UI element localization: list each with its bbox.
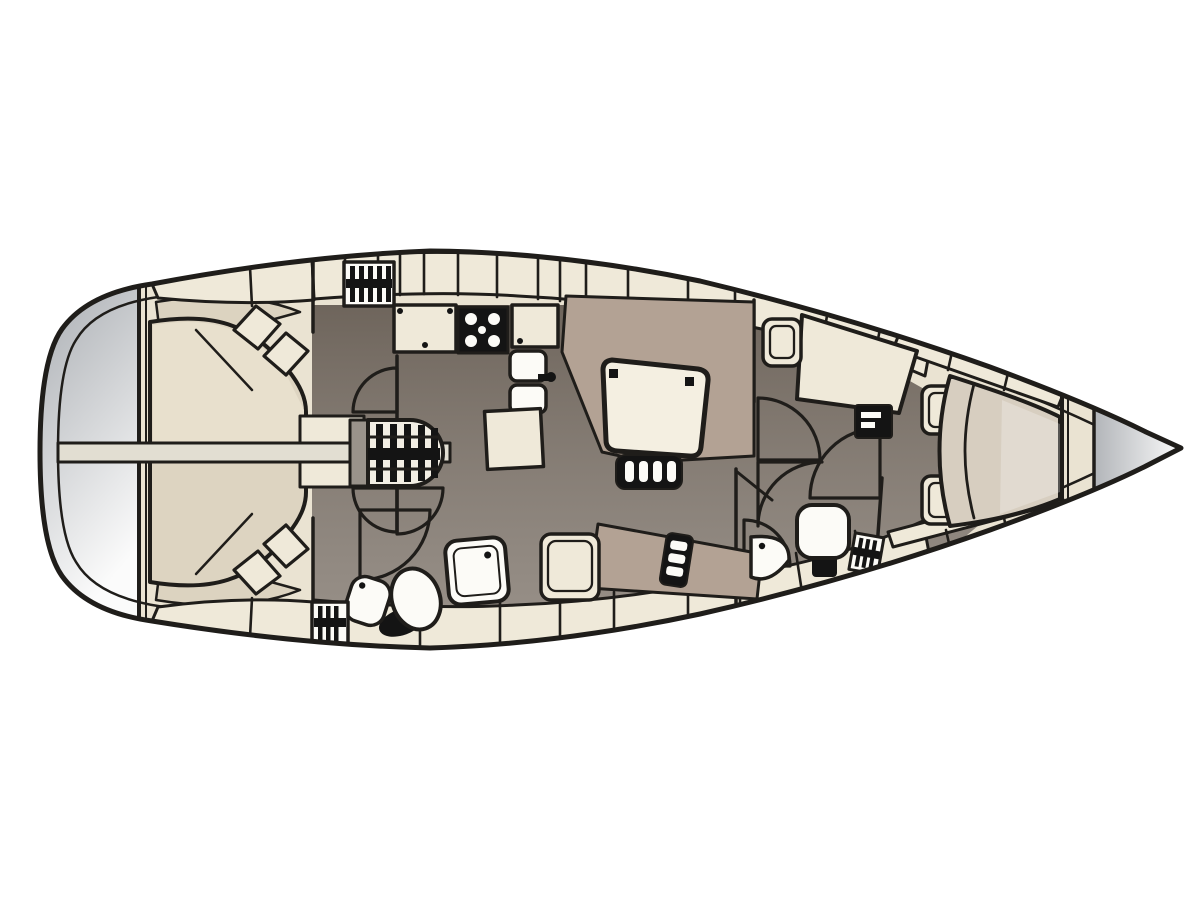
stove	[458, 307, 508, 353]
pedestal-slot	[653, 461, 662, 482]
pedestal-slot	[625, 461, 634, 482]
toilet-bowl	[797, 505, 849, 558]
salon-table	[603, 360, 708, 456]
instrument-panel	[855, 405, 892, 438]
basin-tap	[759, 543, 765, 549]
companionway	[368, 420, 443, 486]
instrument-bar	[861, 412, 881, 418]
burner	[488, 313, 500, 325]
burner	[478, 326, 486, 334]
step-mid-rail	[368, 448, 440, 460]
counter-latch	[397, 308, 403, 314]
shower-stall	[444, 537, 509, 606]
burner	[465, 313, 477, 325]
pedestal-slot	[667, 461, 676, 482]
table-corner-dot	[609, 369, 618, 378]
hatch-grate-top	[344, 262, 394, 306]
instrument-bar	[861, 422, 875, 428]
grate-mid-band	[314, 618, 346, 627]
counter-latch	[517, 338, 523, 344]
table-pedestal	[616, 455, 682, 489]
floorplan-canvas	[0, 0, 1200, 899]
burner	[465, 335, 477, 347]
sink-faucet-head	[546, 372, 556, 382]
galley-landing	[485, 409, 544, 470]
table-corner-dot	[685, 377, 694, 386]
interior	[36, 251, 1181, 649]
plan-root	[36, 251, 1181, 649]
burner	[488, 335, 500, 347]
pedestal-slot	[639, 461, 648, 482]
yacht-floorplan-svg	[0, 0, 1200, 899]
counter-latch	[422, 342, 428, 348]
instrument-body	[855, 405, 892, 438]
grate-mid-band	[346, 279, 392, 288]
counter-latch	[447, 308, 453, 314]
